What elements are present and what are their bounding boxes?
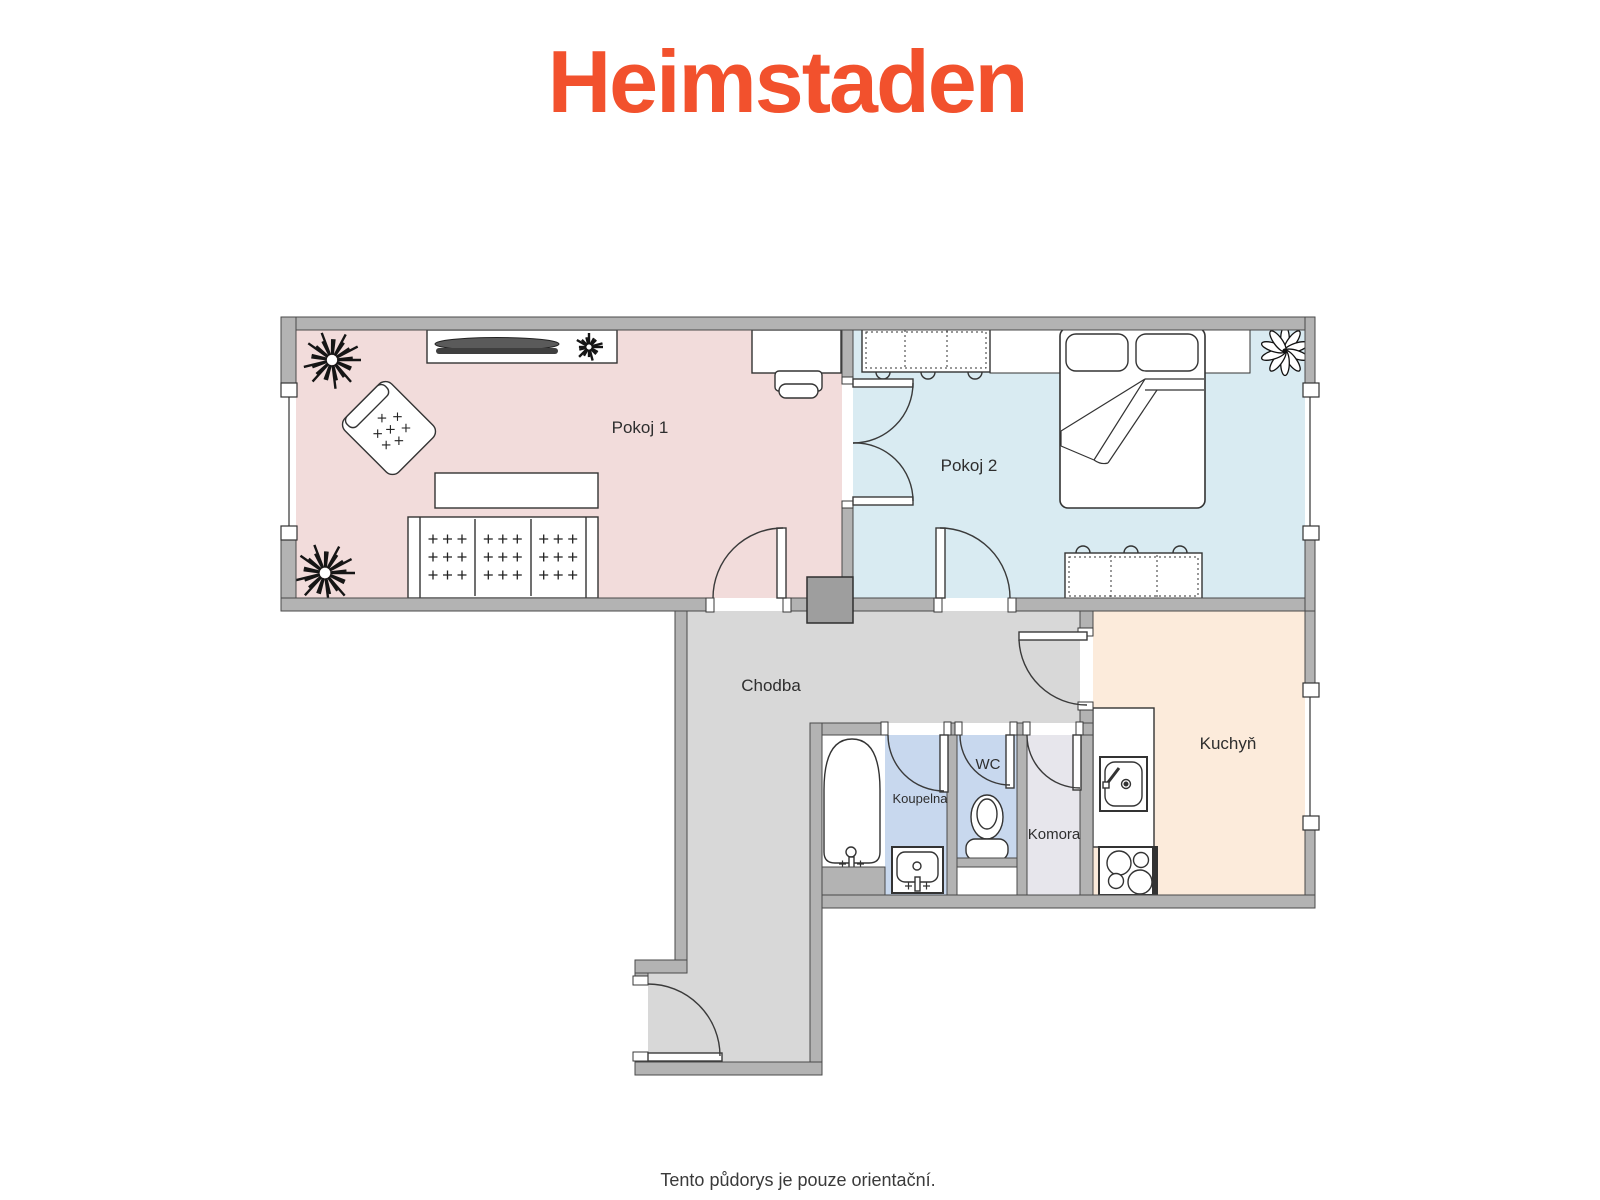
room-label-komora: Komora [1028,826,1081,843]
door-leaf-wc [1006,735,1014,788]
wardrobe-icon [862,328,990,379]
desk-chair-seat [779,384,818,398]
window-kuchyn [1303,683,1319,830]
stove-icon [1099,847,1157,895]
room-floor-komora [1027,735,1080,895]
kitchen-sink-icon [1100,757,1147,811]
desk-icon [752,330,841,373]
bed-icon [1060,328,1205,508]
window-pokoj2 [1303,383,1319,540]
bathroom-sink-icon [892,847,943,893]
window-pokoj1 [281,383,297,540]
door-leaf-komora [1073,735,1081,790]
column [807,577,853,623]
room-label-pokoj2: Pokoj 2 [941,456,998,475]
room-label-chodba: Chodba [741,676,801,695]
door-leaf-double-top [853,379,913,387]
door-leaf-kuchyn [1019,632,1087,640]
disclaimer-text: Tento půdorys je pouze orientační. [0,1170,1596,1191]
door-leaf-pokoj2 [936,528,945,598]
tv-base [436,348,558,354]
door-leaf-pokoj1 [777,528,786,598]
room-label-koupelna: Koupelna [893,791,949,806]
floorplan-svg: Pokoj 1 Pokoj 2 Chodba Kuchyň Koupelna W… [0,0,1600,1200]
room-label-pokoj1: Pokoj 1 [612,418,669,437]
room-label-wc: WC [976,756,1001,773]
dresser-icon [1065,546,1202,600]
door-leaf-koupelna [940,735,948,792]
door-leaf-entrance [648,1053,722,1061]
coffee-table-icon [435,473,598,508]
door-leaf-double-bottom [853,497,913,505]
room-label-kuchyn: Kuchyň [1200,734,1257,753]
bathtub-icon [824,739,880,871]
